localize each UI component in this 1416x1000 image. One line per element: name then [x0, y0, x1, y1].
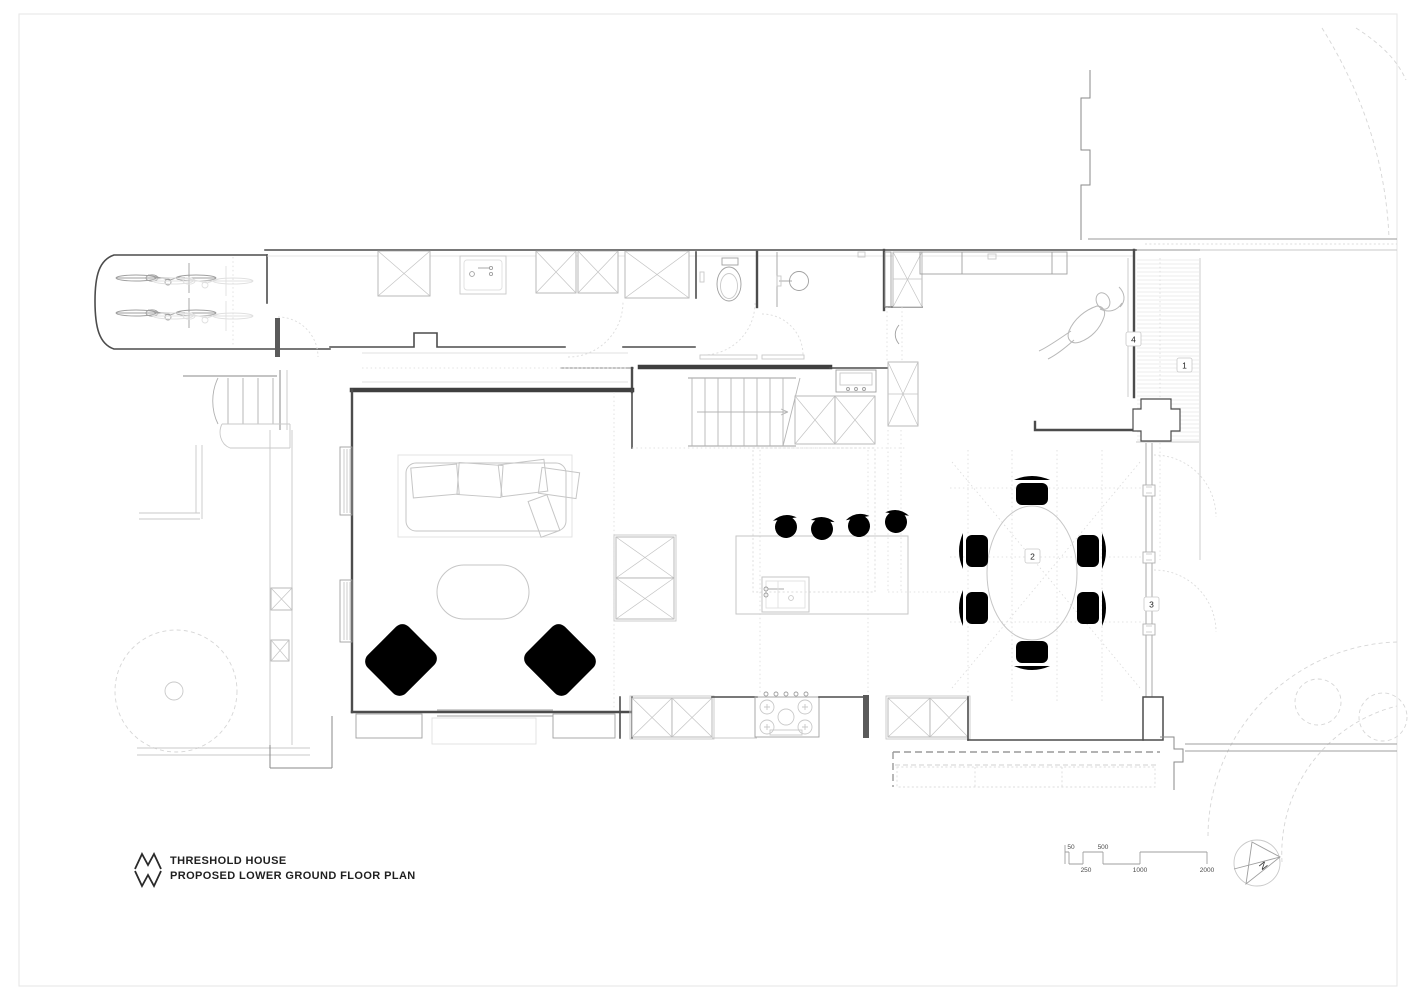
void-box	[795, 396, 835, 444]
stair-direction-arrow	[697, 409, 788, 415]
bike-store	[95, 255, 330, 349]
dining-table	[987, 506, 1077, 640]
marker-1: 1	[1177, 358, 1192, 372]
dining-chair	[959, 533, 988, 569]
lightwell-box	[271, 588, 292, 610]
rooflight-box	[888, 698, 930, 737]
structural-boxes	[614, 535, 676, 621]
garden-wall-right	[1185, 744, 1397, 751]
tree-canopy-top-right	[1322, 28, 1389, 238]
shower-door-leaf	[762, 355, 804, 359]
bike-store-walls	[95, 255, 330, 349]
scale-label-250: 250	[1081, 867, 1092, 874]
void-box	[616, 537, 674, 578]
rooflight-box	[536, 251, 576, 293]
floor-plan-canvas: 4 1 2 3 THRESHOLD HOUSE PROPOSED LOWER G…	[0, 0, 1416, 1000]
dining-chair	[1077, 533, 1106, 569]
armchair-left	[361, 620, 440, 699]
dining-set	[959, 476, 1106, 670]
entry-door-swing	[278, 317, 318, 357]
garden-steps-edge	[1160, 737, 1183, 790]
duct-box	[888, 362, 918, 426]
rooflight-box	[378, 251, 430, 296]
living-room	[270, 353, 632, 768]
wc-door-swing	[703, 303, 755, 355]
corridor-south-wall	[330, 333, 695, 347]
wc-door-leaf	[700, 355, 757, 359]
dining-chair	[1077, 590, 1106, 626]
bar-stool	[883, 508, 910, 534]
door-swing-east-1	[1154, 455, 1216, 517]
tree-canopy-bottom-right-outer	[1208, 642, 1397, 836]
garden-room-south-wall	[1035, 422, 1136, 430]
tree-trunk-right-1	[1295, 679, 1341, 725]
mullion	[1143, 485, 1155, 496]
rooflight-box	[625, 251, 689, 298]
bicycle-ghost-2	[153, 301, 253, 331]
drawing-sheet: 4 1 2 3 THRESHOLD HOUSE PROPOSED LOWER G…	[0, 0, 1416, 1000]
kitchen-island	[736, 536, 908, 614]
person-figure	[1039, 287, 1124, 359]
tree-canopy-bottom-right-inner	[1282, 706, 1397, 862]
scale-label-2000: 2000	[1200, 867, 1215, 874]
basin-unit	[836, 370, 876, 392]
tree-canopy-corner	[1356, 28, 1406, 80]
scale-label-50: 50	[1067, 844, 1075, 851]
coffee-table	[437, 565, 529, 619]
entry-and-lightwell	[183, 317, 318, 745]
dining-chair	[959, 590, 988, 626]
bar-stool	[809, 516, 835, 541]
tree-canopy-left	[115, 630, 237, 752]
kitchen-south-wall	[620, 692, 1163, 740]
marker-3-label: 3	[1149, 600, 1154, 610]
gas-hob	[755, 692, 819, 737]
shower-door-swing	[762, 314, 803, 355]
external-steps	[228, 378, 273, 424]
sofa	[398, 455, 580, 537]
mullion	[1143, 552, 1155, 563]
rooflight-box	[578, 251, 618, 293]
entry-door-leaf	[275, 318, 280, 357]
joinery-box	[893, 252, 922, 307]
mw-logo	[135, 854, 161, 886]
shower	[777, 252, 865, 291]
rooflight-box	[632, 698, 672, 737]
mullion	[1143, 624, 1155, 635]
dining-chair	[1014, 476, 1050, 505]
structure-over-dashed	[893, 737, 1183, 790]
kitchen-dining	[620, 443, 1216, 790]
glazed-sliding-wall	[1143, 443, 1216, 700]
project-name: THRESHOLD HOUSE	[170, 855, 287, 867]
utility-joinery	[885, 252, 922, 362]
window-box	[553, 714, 615, 738]
drawing-name: PROPOSED LOWER GROUND FLOOR PLAN	[170, 870, 416, 882]
marker-2: 2	[1025, 549, 1040, 563]
north-arrow-pointer	[1234, 842, 1280, 884]
marker-1-label: 1	[1182, 361, 1187, 371]
toilet	[700, 258, 741, 301]
rooflight-box	[930, 698, 968, 737]
bicycle-ghost-1	[153, 266, 253, 296]
void-box	[835, 396, 875, 444]
sink-unit-corridor	[460, 256, 506, 294]
north-arrow: N	[1234, 840, 1280, 886]
title-block: THRESHOLD HOUSE PROPOSED LOWER GROUND FL…	[135, 854, 416, 886]
neighbour-wall-outline	[1081, 70, 1090, 240]
scale-label-500: 500	[1098, 844, 1109, 851]
bay-window	[340, 447, 352, 515]
tree-trunk-right-2	[1359, 693, 1407, 741]
door-swing-tick	[895, 325, 899, 344]
marker-2-label: 2	[1030, 552, 1035, 562]
marker-4: 4	[1126, 332, 1141, 346]
reference-markers: 4 1 2 3	[1025, 332, 1192, 611]
scale-label-1000: 1000	[1133, 867, 1148, 874]
corner-pier	[1143, 697, 1163, 740]
bar-stool	[845, 512, 873, 539]
lightwell-box	[271, 640, 289, 661]
pier-column	[1133, 399, 1180, 441]
scale-bar-line	[1065, 845, 1207, 864]
armchair-right	[520, 620, 599, 699]
scale-bar: 50 500 250 1000 2000	[1065, 844, 1215, 874]
marker-4-label: 4	[1131, 335, 1136, 345]
top-corridor	[265, 250, 1136, 357]
tree-trunk-left	[165, 682, 183, 700]
window-box	[356, 714, 422, 738]
north-label: N	[1256, 860, 1269, 873]
dining-chair	[1014, 641, 1050, 670]
rooflight-box	[672, 698, 712, 737]
sheet-border	[19, 14, 1397, 986]
wall-pier	[863, 695, 869, 738]
lightwell-strip	[270, 430, 292, 745]
marker-3: 3	[1144, 597, 1159, 611]
bay-window	[340, 580, 352, 642]
retaining-wall-left	[139, 445, 202, 519]
door-swing-east-2	[1154, 570, 1216, 632]
garden-room-counter	[920, 252, 1067, 274]
neighbour-building	[1081, 70, 1397, 250]
corridor-door-swing	[568, 302, 623, 357]
void-box	[616, 578, 674, 619]
terrace-edge-left	[137, 748, 310, 755]
bathrooms	[696, 250, 922, 359]
island-sink	[762, 577, 809, 612]
